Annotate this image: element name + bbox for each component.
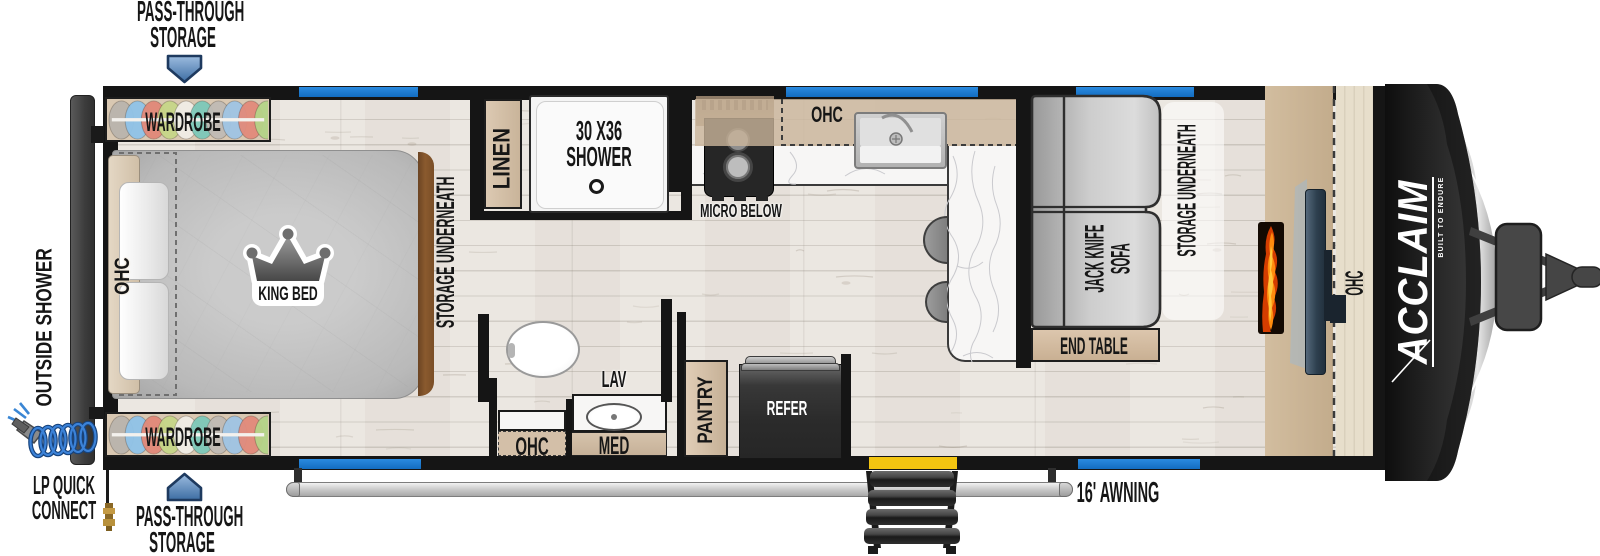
svg-text:ACCLAIM: ACCLAIM [1388, 179, 1436, 365]
svg-text:BUILT TO ENDURE: BUILT TO ENDURE [1438, 176, 1445, 257]
svg-text:KING BED: KING BED [258, 285, 317, 305]
